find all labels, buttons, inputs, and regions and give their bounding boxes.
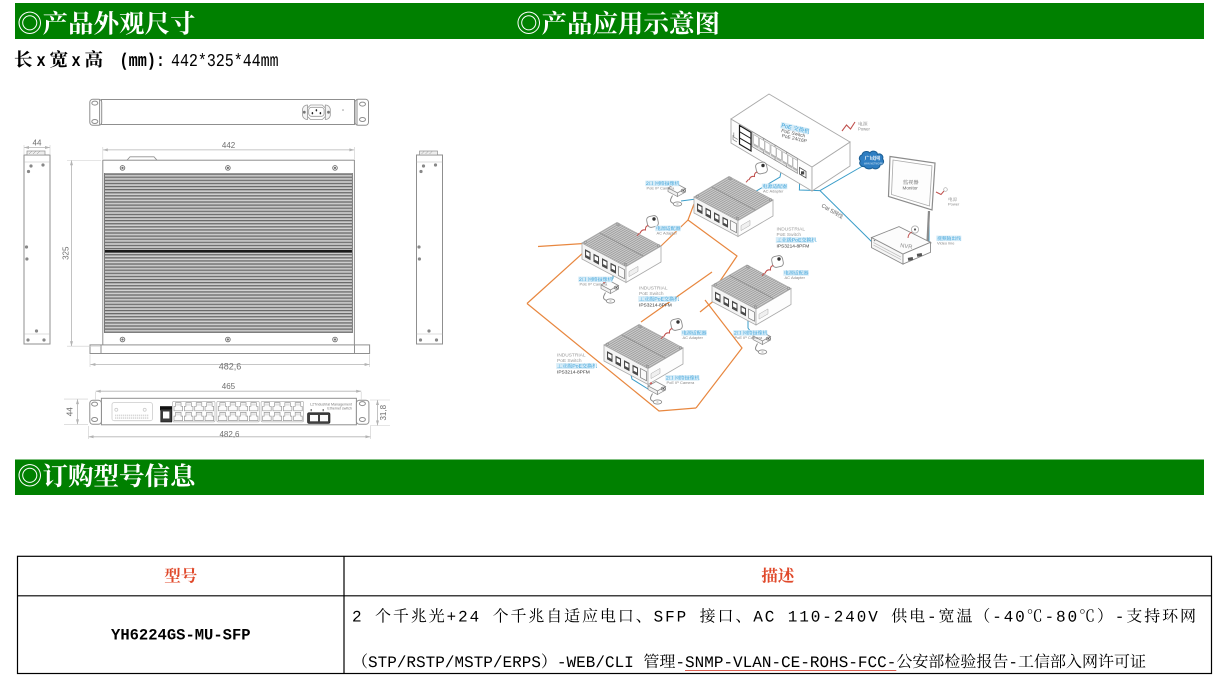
svg-text:Video line: Video line [937,241,955,246]
svg-text:44: 44 [66,407,75,416]
svg-text:Ethernet switch: Ethernet switch [327,407,352,411]
svg-text:465: 465 [222,382,236,391]
svg-text:WAN NETWORK: WAN NETWORK [864,163,884,166]
svg-text:Power: Power [858,127,870,132]
svg-text:482,6: 482,6 [219,362,242,372]
svg-text:Monitor: Monitor [903,186,919,191]
svg-text:Power: Power [948,202,960,207]
svg-text:482,6: 482,6 [219,430,240,439]
svg-text:44: 44 [33,139,42,148]
svg-text:YH6224GS-MU-SFP: YH6224GS-MU-SFP [111,627,251,645]
svg-text:442: 442 [222,141,236,150]
svg-text:325: 325 [62,246,71,260]
svg-text:31,8: 31,8 [379,404,388,420]
